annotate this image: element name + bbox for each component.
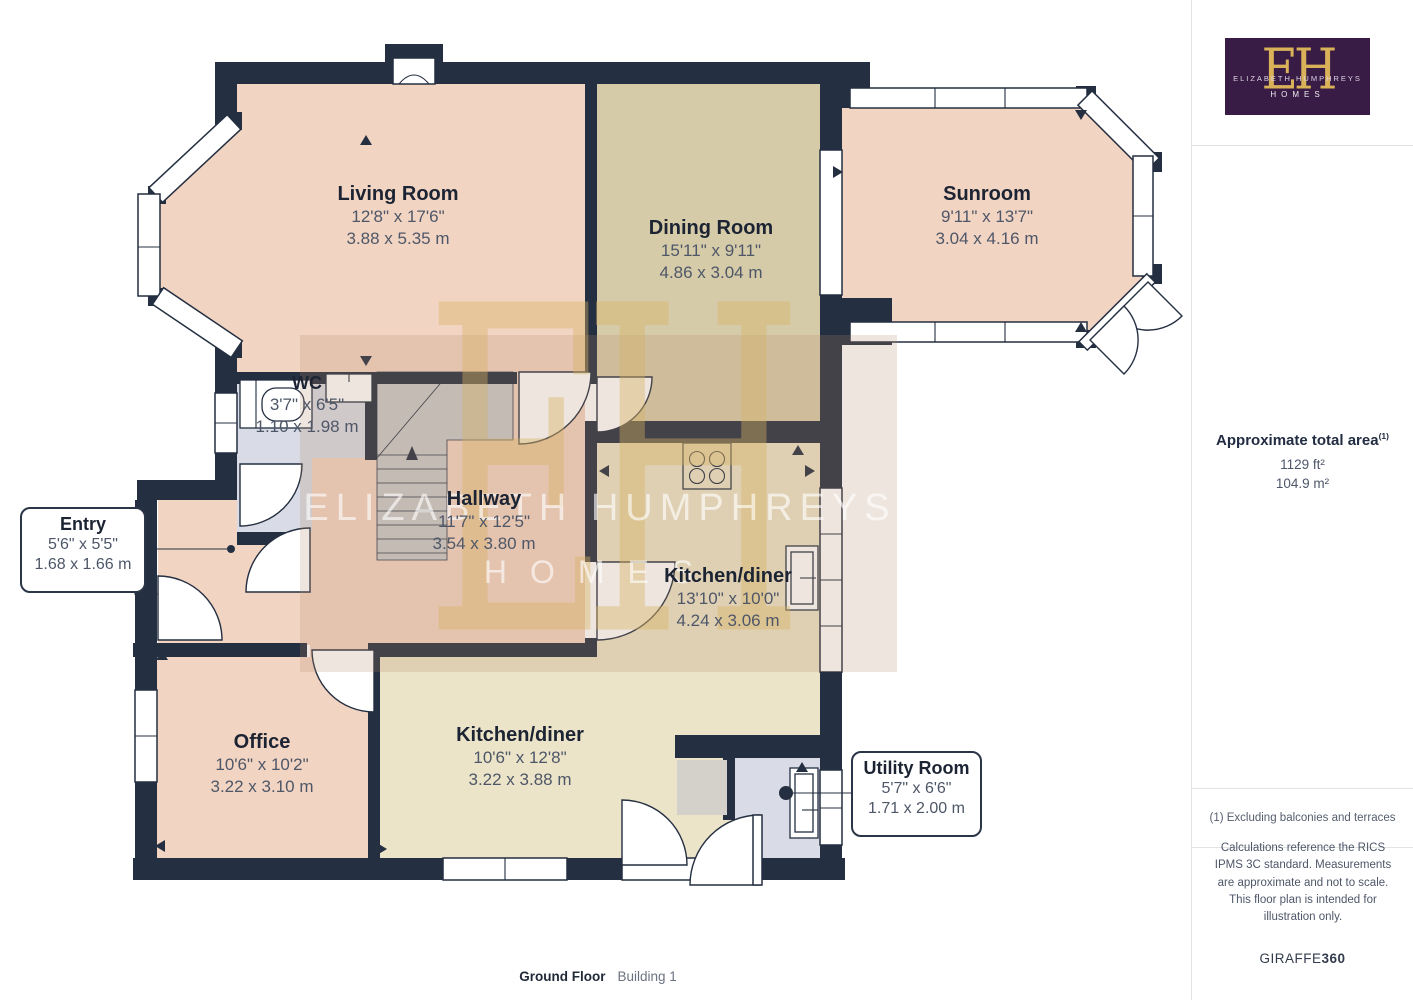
logo-name: ELIZABETH HUMPHREYS	[1225, 74, 1370, 83]
room-label-living-room: Living Room 12'8" x 17'6" 3.88 x 5.35 m	[337, 183, 458, 250]
room-dims-metric: 3.04 x 4.16 m	[935, 228, 1038, 250]
room-label-kitchen-diner-upper: Kitchen/diner 13'10" x 10'0" 4.24 x 3.06…	[664, 565, 792, 632]
room-name: Hallway	[432, 488, 535, 511]
callout-utility-room: Utility Room 5'7" x 6'6" 1.71 x 2.00 m	[851, 751, 982, 837]
room-dims-metric: 1.68 x 1.66 m	[22, 555, 144, 575]
total-area-label: Approximate total area	[1216, 432, 1379, 449]
room-dims-metric: 4.24 x 3.06 m	[664, 610, 792, 632]
room-label-sunroom: Sunroom 9'11" x 13'7" 3.04 x 4.16 m	[935, 183, 1038, 250]
total-area-title: Approximate total area(1)	[1192, 431, 1413, 449]
room-name: Sunroom	[935, 183, 1038, 206]
room-dims-imperial: 15'11" x 9'11"	[649, 240, 773, 262]
room-dims-imperial: 12'8" x 17'6"	[337, 206, 458, 228]
room-dims-imperial: 3'7" x 6'5"	[255, 394, 358, 416]
room-name: Dining Room	[649, 217, 773, 240]
room-dims-metric: 4.86 x 3.04 m	[649, 262, 773, 284]
room-name: Kitchen/diner	[664, 565, 792, 588]
info-sidebar: EH ELIZABETH HUMPHREYS HOMES Approximate…	[1191, 0, 1413, 1000]
building-label: Building 1	[617, 969, 676, 984]
total-area-footnote-marker: (1)	[1379, 431, 1389, 441]
agency-logo: EH ELIZABETH HUMPHREYS HOMES	[1225, 38, 1370, 115]
room-dims-metric: 3.88 x 5.35 m	[337, 228, 458, 250]
room-dims-imperial: 5'7" x 6'6"	[853, 779, 980, 799]
watermark-monogram: EH	[425, 250, 776, 700]
room-label-hallway: Hallway 11'7" x 12'5" 3.54 x 3.80 m	[432, 488, 535, 555]
watermark-line1: ELIZABETH HUMPHREYS	[303, 487, 896, 530]
room-name: Office	[210, 731, 313, 754]
sidebar-divider	[1192, 145, 1413, 146]
room-label-office: Office 10'6" x 10'2" 3.22 x 3.10 m	[210, 731, 313, 798]
appliance-icon	[677, 760, 727, 815]
total-area-metric: 104.9 m²	[1192, 476, 1413, 491]
brand-name: GIRAFFE	[1259, 951, 1321, 966]
sidebar-divider	[1192, 788, 1413, 789]
floorplan-page: EH ELIZABETH HUMPHREYS HOMES Living Room…	[0, 0, 1413, 1000]
room-label-wc: WC 3'7" x 6'5" 1.10 x 1.98 m	[255, 373, 358, 438]
room-dims-metric: 3.22 x 3.88 m	[456, 769, 584, 791]
fireplace-icon	[393, 58, 435, 84]
floor-plan: EH ELIZABETH HUMPHREYS HOMES Living Room…	[0, 0, 1191, 1000]
room-dims-metric: 1.10 x 1.98 m	[255, 416, 358, 438]
total-area-imperial: 1129 ft²	[1192, 457, 1413, 472]
brand-number: 360	[1321, 951, 1345, 966]
disclaimer-text: Calculations reference the RICS IPMS 3C …	[1208, 840, 1398, 926]
room-dims-imperial: 9'11" x 13'7"	[935, 206, 1038, 228]
callout-entry: Entry 5'6" x 5'5" 1.68 x 1.66 m	[20, 507, 146, 593]
floor-label: Ground Floor	[519, 969, 605, 984]
room-name: Kitchen/diner	[456, 724, 584, 747]
room-name: Living Room	[337, 183, 458, 206]
room-name: Utility Room	[853, 758, 980, 779]
room-dims-metric: 3.54 x 3.80 m	[432, 533, 535, 555]
giraffe360-brand: GIRAFFE360	[1192, 951, 1413, 966]
area-footnote: (1) Excluding balconies and terraces	[1192, 812, 1413, 824]
plan-footer: Ground FloorBuilding 1	[519, 969, 677, 984]
room-label-dining-room: Dining Room 15'11" x 9'11" 4.86 x 3.04 m	[649, 217, 773, 284]
logo-subname: HOMES	[1225, 90, 1370, 99]
room-dims-imperial: 10'6" x 10'2"	[210, 754, 313, 776]
room-dims-imperial: 11'7" x 12'5"	[432, 511, 535, 533]
room-label-kitchen-diner-lower: Kitchen/diner 10'6" x 12'8" 3.22 x 3.88 …	[456, 724, 584, 791]
room-name: WC	[255, 373, 358, 394]
room-name: Entry	[22, 514, 144, 535]
room-dims-metric: 1.71 x 2.00 m	[853, 799, 980, 819]
room-dims-imperial: 10'6" x 12'8"	[456, 747, 584, 769]
room-dims-metric: 3.22 x 3.10 m	[210, 776, 313, 798]
room-dims-imperial: 13'10" x 10'0"	[664, 588, 792, 610]
room-dims-imperial: 5'6" x 5'5"	[22, 535, 144, 555]
